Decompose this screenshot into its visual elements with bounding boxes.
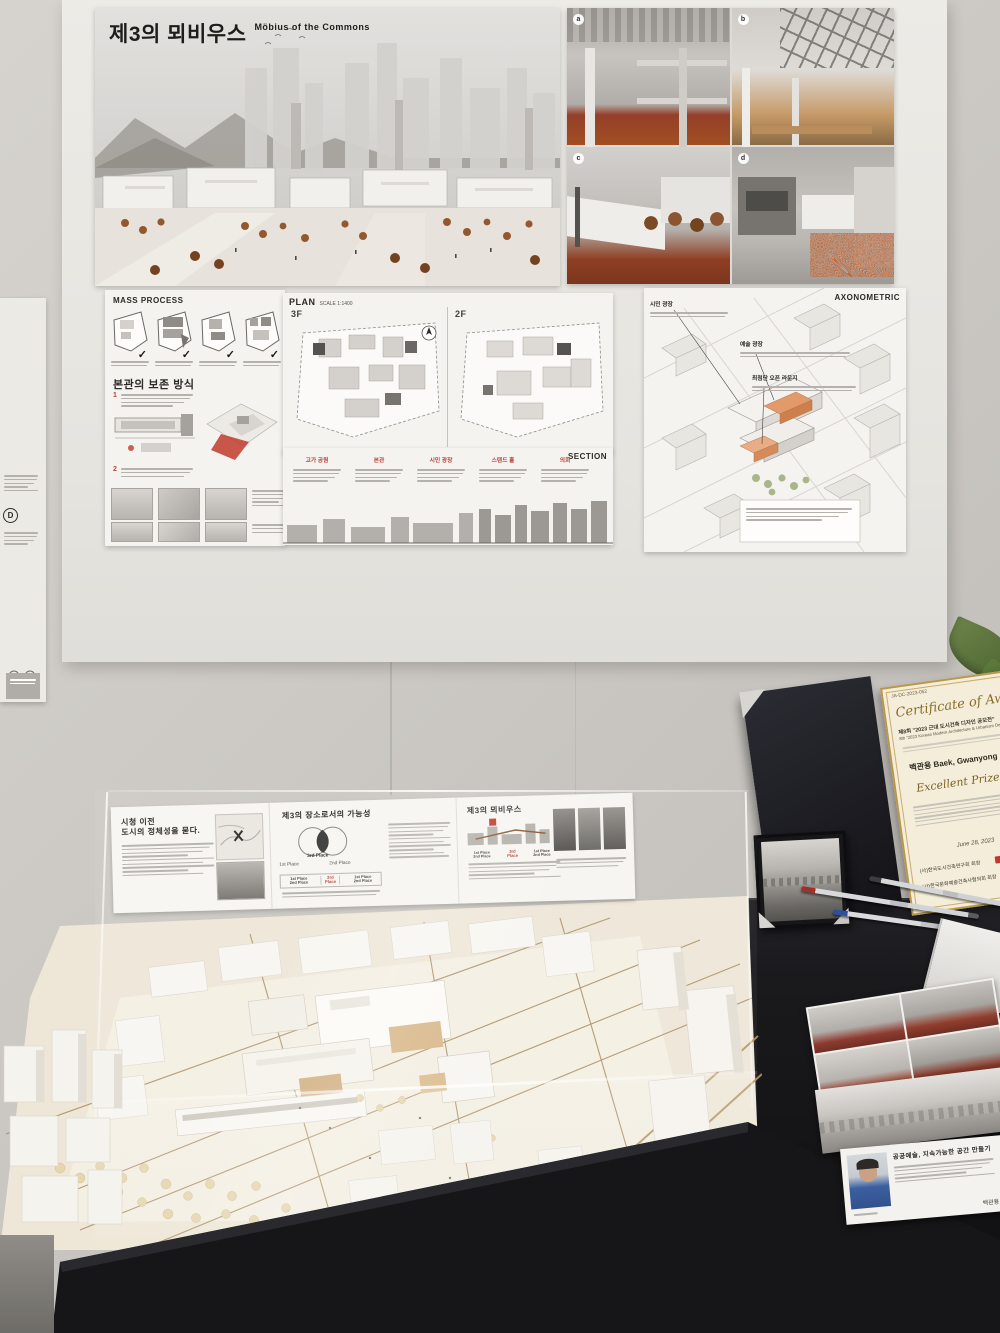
panel-mass-process: MASS PROCESS ✓ ✓ ✓ ✓ [105,290,285,546]
mass-thumb-5 [158,522,200,542]
mass-thumb-1 [111,488,153,520]
place-table-cell-1: 1st Place 2nd Place [287,877,311,886]
render-badge-d: d [738,153,749,164]
case-panel-city-identity: 시청 이전 도시의 정체성을 묻다. [111,803,273,913]
plan-3f-drawing [289,315,445,447]
case-panel-mobius: 제3의 뫼비우스 1st Place 2nd Place 3rd Place 1… [456,793,635,904]
profile-card: 공공예술, 지속가능한 공간 만들기 백관용 [840,1135,1000,1225]
panel-plan: PLAN SCALE 1:1400 3F 2F [283,293,613,453]
case-left-photo-thumb [216,861,265,900]
exhibition-photo: D [0,0,1000,1333]
mobius-mini-section [465,815,552,847]
plan-header: PLAN [289,297,316,307]
poster-interior-renders: a b c d [567,8,894,284]
mass-step-3: ✓ [199,310,237,369]
mobius-photo-1 [553,808,576,851]
case-left-map-thumb [215,813,264,860]
render-badge-c: c [573,153,584,164]
profile-photo [847,1152,892,1209]
render-terrace: c [567,147,730,284]
axon-label-1: 시민 광장 [650,300,673,308]
venn-left-label: 1st Place [279,862,299,867]
left-strip-poster: D [0,298,46,702]
case-right-title: 제3의 뫼비우스 [467,804,522,817]
plan-2f-drawing [453,315,609,447]
case-top-edge [108,790,748,792]
render-badge-a: a [573,14,584,25]
folio-corner-top [739,689,768,718]
preserve-diagram [111,410,199,460]
wall-seam-vertical [390,655,392,795]
left-strip-footer-label [6,673,40,699]
render-skylight-hall: b [732,8,895,145]
section-drawing [283,499,613,545]
poster-title-en: Möbius of the Commons [254,22,370,32]
poster-title-kr: 제3의 뫼비우스 [109,18,246,48]
venn-right-label: 2nd Place [329,861,350,866]
panel-section: SECTION 고가 공원 본관 시민 광장 스탠드 홀 의회 [283,448,613,545]
case-panel-third-place: 제3의 장소로서의 가능성 1st Place 2nd Place 3rd Pl… [270,798,460,909]
mass-thumb-3 [205,488,247,520]
poster-main-render: 제3의 뫼비우스 Möbius of the Commons [95,8,560,286]
axon-header: AXONOMETRIC [835,293,901,302]
mobius-photo-3 [603,807,626,850]
case-center-title: 제3의 장소로서의 가능성 [282,808,371,821]
left-strip-badge: D [3,508,18,523]
case-left-title-2: 도시의 정체성을 묻다. [121,825,200,838]
city-rendering [95,8,560,286]
wall-seam-behind-case [575,655,576,805]
render-badge-b: b [738,14,749,25]
panel-axonometric: AXONOMETRIC [644,288,906,552]
mass-step-1: ✓ [111,310,149,369]
mass-process-header: MASS PROCESS [113,296,183,305]
render-atrium: a [567,8,730,145]
mass-step-4: ✓ [243,310,281,369]
place-table-cell-2: 3rd Place [321,876,341,885]
render-courtyard: d [732,147,895,284]
mobius-place-3: 1st Place 2nd Place [531,849,553,857]
axon-label-3: 최첨단 오픈 라운지 [752,374,798,382]
profile-card-name: 백관용 [982,1197,999,1207]
red-seal-1 [994,856,1000,864]
case-info-strip: 시청 이전 도시의 정체성을 묻다. 제3의 장소로서의 가능성 1st Pla… [111,793,636,914]
axon-label-2: 예술 광장 [740,340,763,348]
preserve-axon-vignette [201,394,281,464]
preserve-title: 본관의 보존 방식 [113,376,194,392]
plan-scale: SCALE 1:1400 [320,301,353,307]
mass-step-2: ✓ [155,310,193,369]
venn-center-label: 3rd Place [307,853,328,858]
mobius-place-1: 1st Place 2nd Place [471,851,493,859]
mobius-photo-2 [578,808,601,851]
mobius-place-2: 3rd Place [503,850,521,859]
place-table-cell-3: 1st Place 2nd Place [350,875,374,884]
floor-sliver [0,1235,54,1333]
mass-thumb-6 [205,522,247,542]
mass-thumb-4 [111,522,153,542]
mass-thumb-2 [158,488,200,520]
